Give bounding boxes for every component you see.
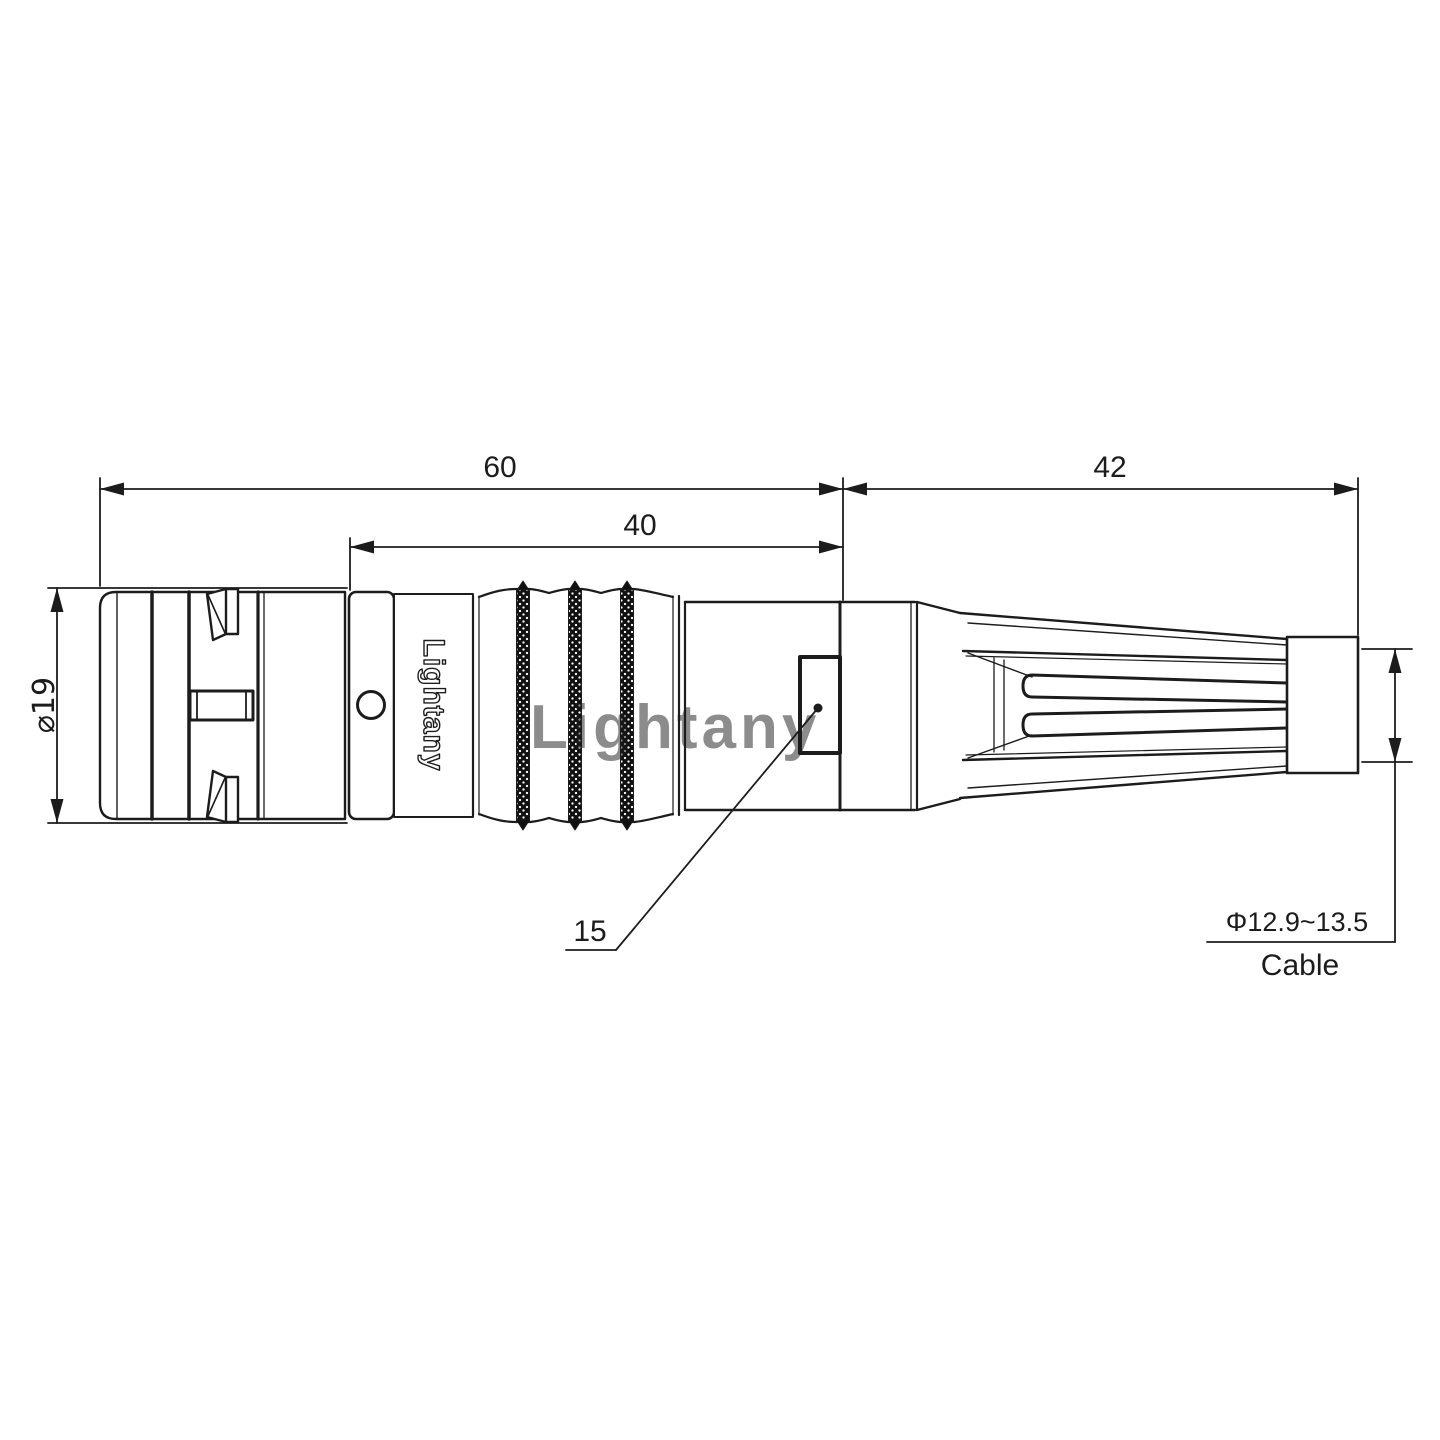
dim-label-60: 60 xyxy=(483,451,516,484)
release-window xyxy=(190,691,253,720)
connector-technical-drawing: Lightany xyxy=(0,0,1440,1440)
arrowhead-right xyxy=(1334,483,1358,496)
dim-overall-length: 60 xyxy=(100,451,843,600)
dim-front-diameter: ⌀19 xyxy=(27,588,347,823)
latch-cutout-top xyxy=(207,589,238,640)
arrowhead-left xyxy=(100,483,124,496)
arrowhead-left xyxy=(843,483,867,496)
arrowhead-up xyxy=(1389,649,1402,673)
dim-label-42: 42 xyxy=(1093,451,1126,484)
collar-ring xyxy=(349,592,394,819)
arrowhead-down xyxy=(51,799,64,823)
dim-label-40: 40 xyxy=(623,509,656,542)
technical-drawing-page: Lightany xyxy=(0,0,1440,1440)
dim-mid-length: 40 xyxy=(350,509,843,590)
latch-cutout-bottom xyxy=(207,771,238,822)
drawing-root: Lightany xyxy=(27,451,1412,982)
watermark-text: Lightany xyxy=(530,693,820,762)
brand-barrel: Lightany xyxy=(394,594,473,817)
arrowhead-right xyxy=(819,483,843,496)
arrowhead-left xyxy=(350,541,374,554)
dim-label-cable-range: Φ12.9~13.5 xyxy=(1226,907,1368,937)
callout-label-15: 15 xyxy=(573,915,606,948)
arrowhead-up xyxy=(51,588,64,612)
cable-end-cap xyxy=(1287,637,1358,773)
knurl-band xyxy=(517,581,530,830)
front-sleeve xyxy=(100,589,345,822)
cable-label: Cable xyxy=(1261,949,1339,982)
dim-label-diameter-19: ⌀19 xyxy=(27,677,62,733)
arrowhead-down xyxy=(1389,738,1402,762)
strain-relief-boot xyxy=(917,602,1287,810)
rear-body-section xyxy=(840,602,917,810)
brand-text-vertical: Lightany xyxy=(417,639,450,772)
arrowhead-right xyxy=(819,541,843,554)
dim-boot-length: 42 xyxy=(843,451,1358,635)
